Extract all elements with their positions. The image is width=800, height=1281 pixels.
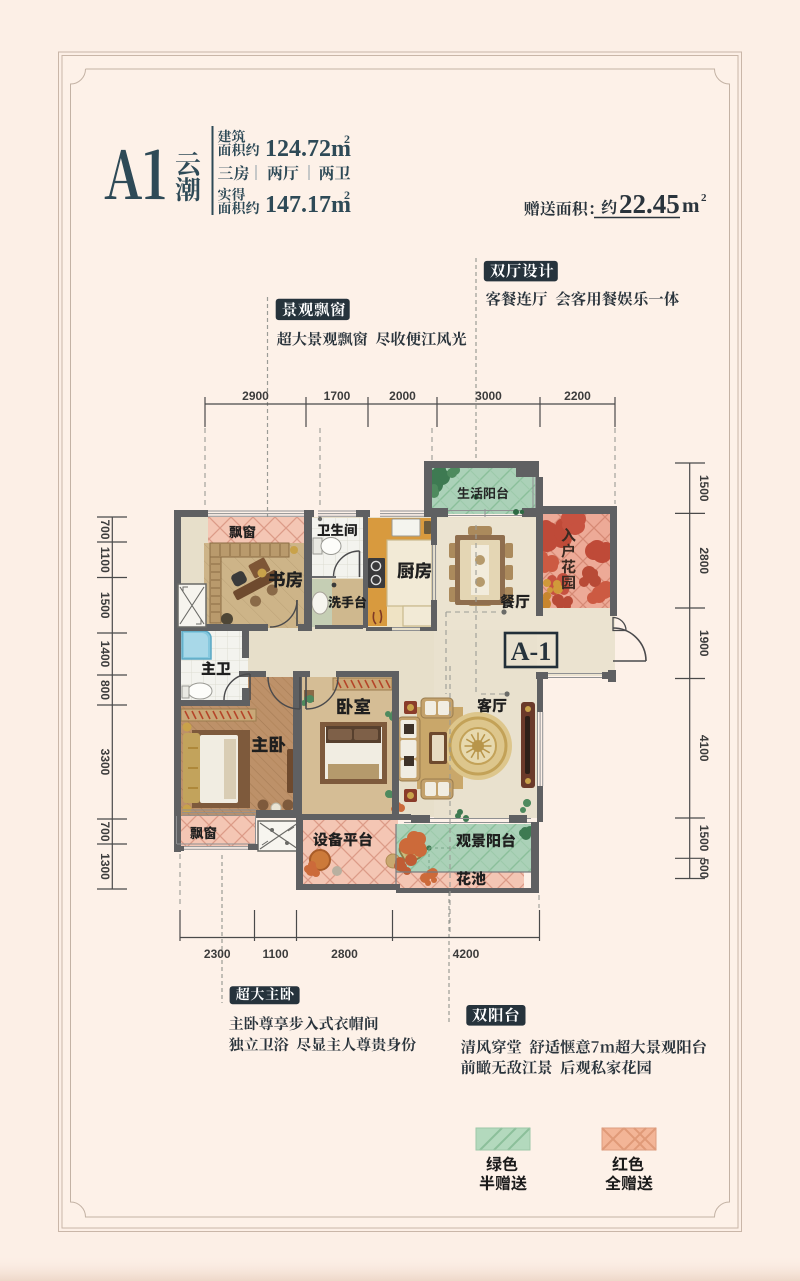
svg-text:2800: 2800 <box>697 547 711 574</box>
svg-text:1500: 1500 <box>697 475 711 502</box>
svg-text:2200: 2200 <box>564 389 591 403</box>
svg-text:2900: 2900 <box>242 389 269 403</box>
svg-text:1100: 1100 <box>98 547 112 573</box>
svg-text:2300: 2300 <box>204 947 231 961</box>
svg-text:1400: 1400 <box>98 641 112 668</box>
svg-text:800: 800 <box>98 680 112 700</box>
svg-text:700: 700 <box>98 519 112 539</box>
svg-text:3300: 3300 <box>98 749 112 776</box>
svg-text:1500: 1500 <box>697 825 711 852</box>
svg-text:1100: 1100 <box>262 947 288 961</box>
svg-text:700: 700 <box>98 821 112 841</box>
svg-text:4200: 4200 <box>453 947 480 961</box>
svg-text:4100: 4100 <box>697 735 711 762</box>
svg-text:2: 2 <box>701 192 707 204</box>
svg-text:1300: 1300 <box>98 853 112 880</box>
svg-text:2800: 2800 <box>331 947 358 961</box>
svg-text:1900: 1900 <box>697 630 711 657</box>
svg-text:m: m <box>682 193 700 217</box>
svg-text:2000: 2000 <box>389 389 416 403</box>
svg-text:500: 500 <box>697 858 711 878</box>
svg-text:124.72m: 124.72m <box>265 136 351 162</box>
svg-text:A-1: A-1 <box>511 637 551 666</box>
svg-text:147.17m: 147.17m <box>265 192 351 218</box>
svg-text:3000: 3000 <box>475 389 502 403</box>
svg-text:1700: 1700 <box>324 389 351 403</box>
svg-text:2: 2 <box>344 132 350 146</box>
svg-text:22.45: 22.45 <box>619 189 680 219</box>
svg-text:2: 2 <box>344 188 350 202</box>
svg-text:1500: 1500 <box>98 592 112 619</box>
